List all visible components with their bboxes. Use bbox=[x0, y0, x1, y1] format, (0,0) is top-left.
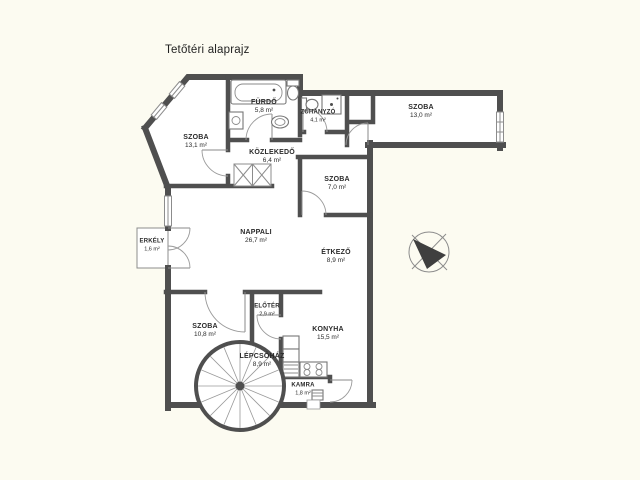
wardrobe-closet bbox=[234, 164, 271, 186]
shower-tray bbox=[322, 95, 341, 114]
fridge-icon bbox=[283, 336, 299, 362]
north-arrow bbox=[409, 232, 449, 272]
balcony-outline bbox=[137, 228, 168, 268]
toilet-icon-zuhanyzo bbox=[302, 98, 319, 111]
floor-plan-page: Tetőtéri alaprajz bbox=[0, 0, 640, 480]
stove-icon bbox=[300, 362, 327, 377]
floor-area bbox=[145, 77, 500, 405]
floor-plan-drawing bbox=[0, 0, 640, 480]
washing-machine-icon bbox=[229, 112, 243, 129]
window-room-east bbox=[497, 112, 504, 142]
kitchen-counter bbox=[283, 362, 299, 377]
threshold-notch bbox=[307, 400, 320, 409]
bathtub bbox=[231, 80, 286, 104]
window-living-room bbox=[165, 196, 172, 226]
sink-icon bbox=[272, 116, 289, 128]
toilet-icon-furdo bbox=[287, 80, 299, 100]
pantry-shelf bbox=[312, 390, 323, 400]
spiral-staircase bbox=[196, 342, 284, 430]
